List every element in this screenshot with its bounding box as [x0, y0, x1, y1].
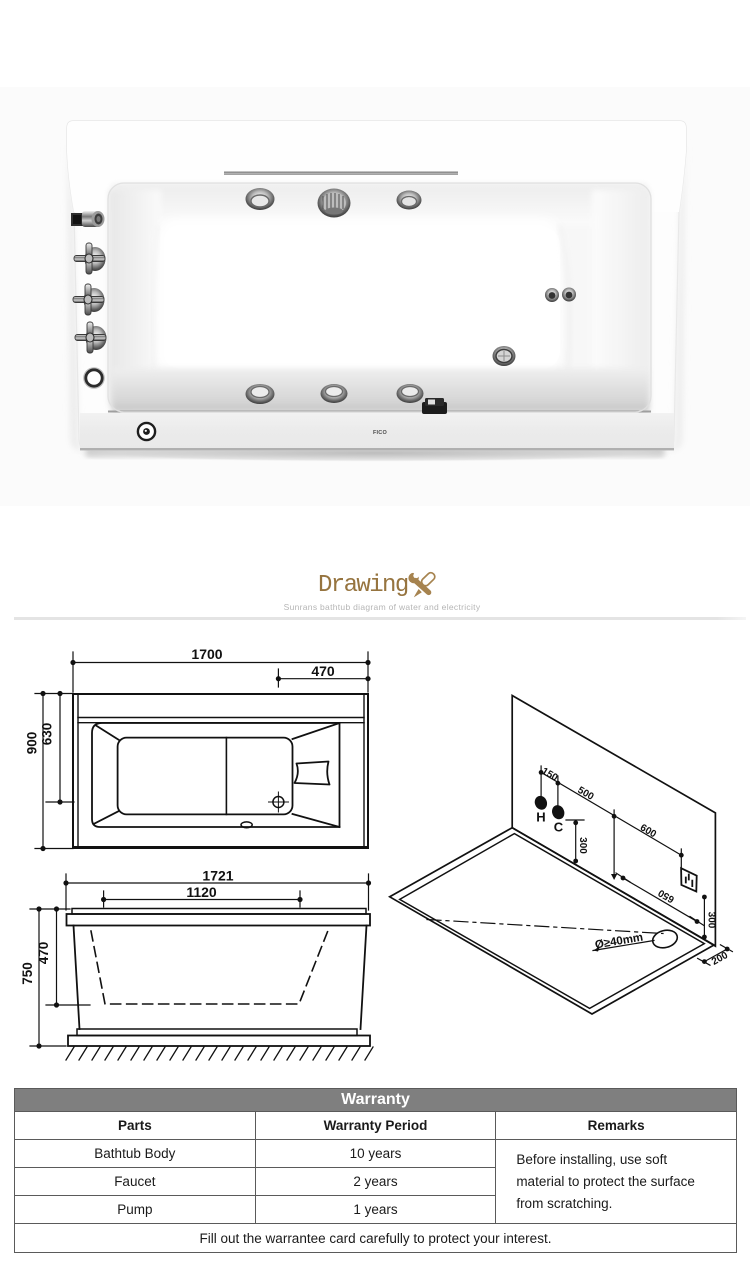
svg-text:Ø≥40mm: Ø≥40mm	[594, 932, 644, 952]
svg-text:C: C	[554, 820, 564, 835]
svg-text:1721: 1721	[202, 868, 233, 884]
svg-text:300: 300	[577, 837, 588, 854]
svg-text:200: 200	[710, 950, 730, 968]
svg-text:600: 600	[638, 822, 658, 840]
svg-text:900: 900	[25, 732, 40, 755]
svg-text:650: 650	[656, 886, 676, 904]
svg-text:470: 470	[311, 663, 335, 679]
svg-text:300: 300	[706, 912, 717, 929]
svg-text:500: 500	[576, 785, 596, 803]
svg-text:750: 750	[20, 962, 35, 985]
svg-text:H: H	[536, 810, 545, 825]
svg-text:1700: 1700	[191, 646, 222, 662]
svg-text:1120: 1120	[186, 884, 217, 900]
svg-text:470: 470	[36, 942, 51, 965]
svg-text:FICO: FICO	[373, 430, 387, 436]
svg-text:630: 630	[40, 723, 55, 746]
